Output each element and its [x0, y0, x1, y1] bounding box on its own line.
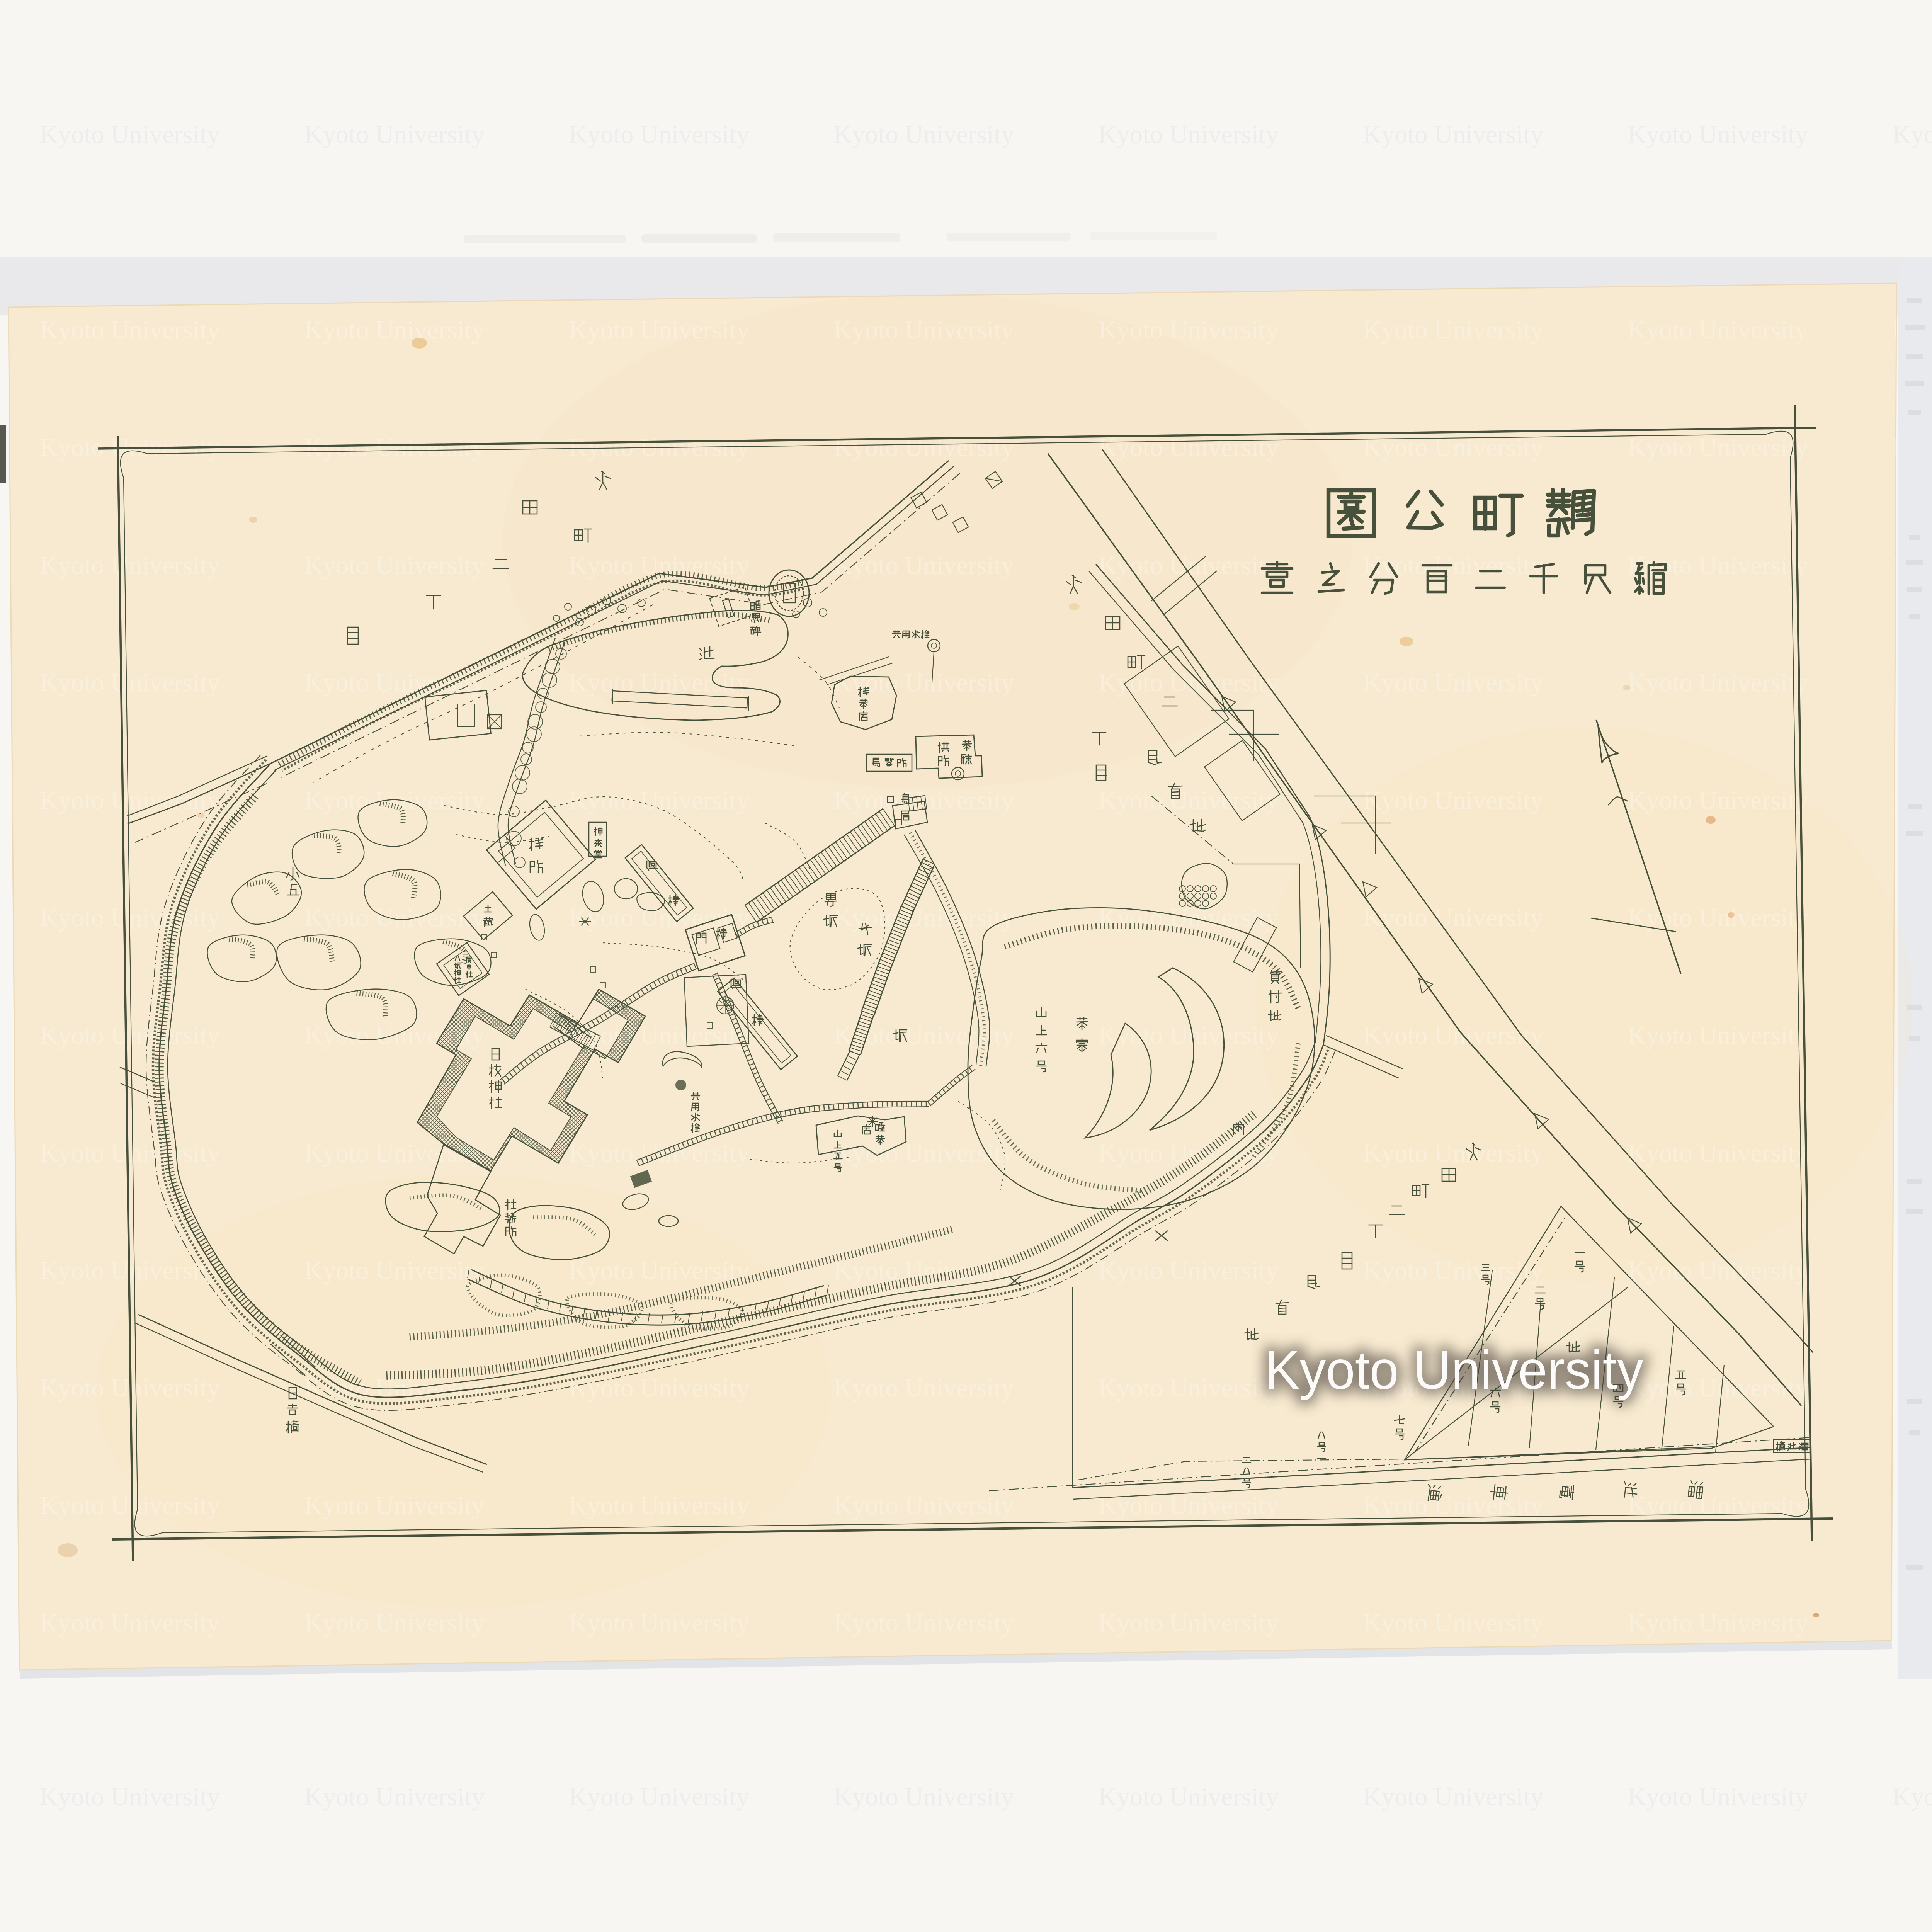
- svg-text:Kyoto University: Kyoto University: [39, 1782, 220, 1811]
- svg-text:Kyoto University: Kyoto University: [1363, 1021, 1544, 1049]
- svg-text:Kyoto University: Kyoto University: [569, 1782, 750, 1811]
- svg-text:Kyoto University: Kyoto University: [1892, 1782, 1932, 1811]
- svg-text:Kyoto University: Kyoto University: [1098, 1491, 1279, 1520]
- svg-text:Kyoto University: Kyoto University: [1363, 1609, 1544, 1637]
- svg-text:Kyoto University: Kyoto University: [1098, 1782, 1279, 1811]
- svg-text:Kyoto University: Kyoto University: [304, 433, 485, 462]
- svg-text:Kyoto University: Kyoto University: [1098, 1256, 1279, 1285]
- svg-text:Kyoto University: Kyoto University: [1628, 1609, 1808, 1637]
- svg-text:Kyoto University: Kyoto University: [569, 1609, 750, 1637]
- svg-text:Kyoto University: Kyoto University: [1628, 1256, 1808, 1285]
- svg-text:Kyoto University: Kyoto University: [304, 120, 485, 149]
- svg-text:Kyoto University: Kyoto University: [1628, 1139, 1808, 1167]
- svg-text:Kyoto University: Kyoto University: [1892, 120, 1932, 149]
- svg-text:Kyoto University: Kyoto University: [1098, 1609, 1279, 1637]
- svg-text:Kyoto University: Kyoto University: [1363, 120, 1544, 149]
- svg-text:Kyoto University: Kyoto University: [833, 1491, 1014, 1520]
- svg-text:Kyoto University: Kyoto University: [1363, 1256, 1544, 1285]
- svg-text:Kyoto University: Kyoto University: [833, 120, 1014, 149]
- svg-text:Kyoto University: Kyoto University: [833, 903, 1014, 932]
- svg-text:Kyoto University: Kyoto University: [833, 1374, 1014, 1402]
- svg-text:Kyoto University: Kyoto University: [39, 668, 220, 697]
- svg-text:Kyoto University: Kyoto University: [304, 1782, 485, 1811]
- svg-text:Kyoto University: Kyoto University: [1098, 316, 1279, 344]
- svg-text:Kyoto University: Kyoto University: [1363, 903, 1544, 932]
- svg-text:Kyoto University: Kyoto University: [1628, 433, 1808, 462]
- svg-text:Kyoto University: Kyoto University: [569, 786, 750, 815]
- svg-text:Kyoto University: Kyoto University: [1098, 433, 1279, 462]
- svg-text:Kyoto University: Kyoto University: [833, 316, 1014, 344]
- svg-text:Kyoto University: Kyoto University: [304, 551, 485, 580]
- svg-text:Kyoto University: Kyoto University: [1363, 1491, 1544, 1520]
- svg-text:Kyoto University: Kyoto University: [39, 1491, 220, 1520]
- svg-text:Kyoto University: Kyoto University: [569, 668, 750, 697]
- svg-text:Kyoto University: Kyoto University: [304, 316, 485, 344]
- svg-text:Kyoto University: Kyoto University: [833, 786, 1014, 815]
- svg-text:Kyoto University: Kyoto University: [569, 1374, 750, 1402]
- svg-text:Kyoto University: Kyoto University: [569, 551, 750, 580]
- svg-text:Kyoto University: Kyoto University: [1098, 1021, 1279, 1049]
- svg-text:Kyoto University: Kyoto University: [1098, 120, 1279, 149]
- svg-text:Kyoto University: Kyoto University: [39, 786, 220, 815]
- svg-text:Kyoto University: Kyoto University: [1628, 1782, 1808, 1811]
- svg-text:Kyoto University: Kyoto University: [1363, 786, 1544, 815]
- svg-text:Kyoto University: Kyoto University: [1363, 668, 1544, 697]
- svg-text:Kyoto University: Kyoto University: [1628, 120, 1808, 149]
- svg-text:Kyoto University: Kyoto University: [1628, 668, 1808, 697]
- svg-text:Kyoto University: Kyoto University: [39, 1139, 220, 1167]
- svg-text:Kyoto University: Kyoto University: [1628, 316, 1808, 344]
- svg-text:Kyoto University: Kyoto University: [39, 120, 220, 149]
- svg-text:Kyoto University: Kyoto University: [304, 1256, 485, 1285]
- svg-text:Kyoto University: Kyoto University: [1098, 551, 1279, 580]
- svg-text:Kyoto University: Kyoto University: [569, 120, 750, 149]
- svg-text:Kyoto University: Kyoto University: [304, 786, 485, 815]
- svg-text:Kyoto University: Kyoto University: [39, 551, 220, 580]
- svg-text:Kyoto University: Kyoto University: [304, 1609, 485, 1637]
- svg-text:Kyoto University: Kyoto University: [1628, 1374, 1808, 1402]
- svg-text:Kyoto University: Kyoto University: [833, 551, 1014, 580]
- svg-text:Kyoto University: Kyoto University: [833, 1782, 1014, 1811]
- svg-text:Kyoto University: Kyoto University: [569, 1491, 750, 1520]
- svg-text:Kyoto University: Kyoto University: [569, 316, 750, 344]
- svg-text:Kyoto University: Kyoto University: [1098, 786, 1279, 815]
- svg-text:Kyoto University: Kyoto University: [1363, 1139, 1544, 1167]
- svg-text:Kyoto University: Kyoto University: [1363, 1782, 1544, 1811]
- svg-text:Kyoto University: Kyoto University: [39, 316, 220, 344]
- svg-text:Kyoto University: Kyoto University: [1628, 786, 1808, 815]
- svg-text:Kyoto University: Kyoto University: [1098, 1374, 1279, 1402]
- svg-text:Kyoto University: Kyoto University: [1265, 1339, 1643, 1400]
- svg-text:Kyoto University: Kyoto University: [833, 1609, 1014, 1637]
- svg-text:Kyoto University: Kyoto University: [304, 903, 485, 932]
- svg-text:Kyoto University: Kyoto University: [1363, 316, 1544, 344]
- svg-text:Kyoto University: Kyoto University: [569, 1256, 750, 1285]
- svg-text:Kyoto University: Kyoto University: [1628, 1021, 1808, 1049]
- svg-text:Kyoto University: Kyoto University: [39, 1021, 220, 1049]
- svg-text:Kyoto University: Kyoto University: [304, 1491, 485, 1520]
- svg-text:Kyoto University: Kyoto University: [39, 1609, 220, 1637]
